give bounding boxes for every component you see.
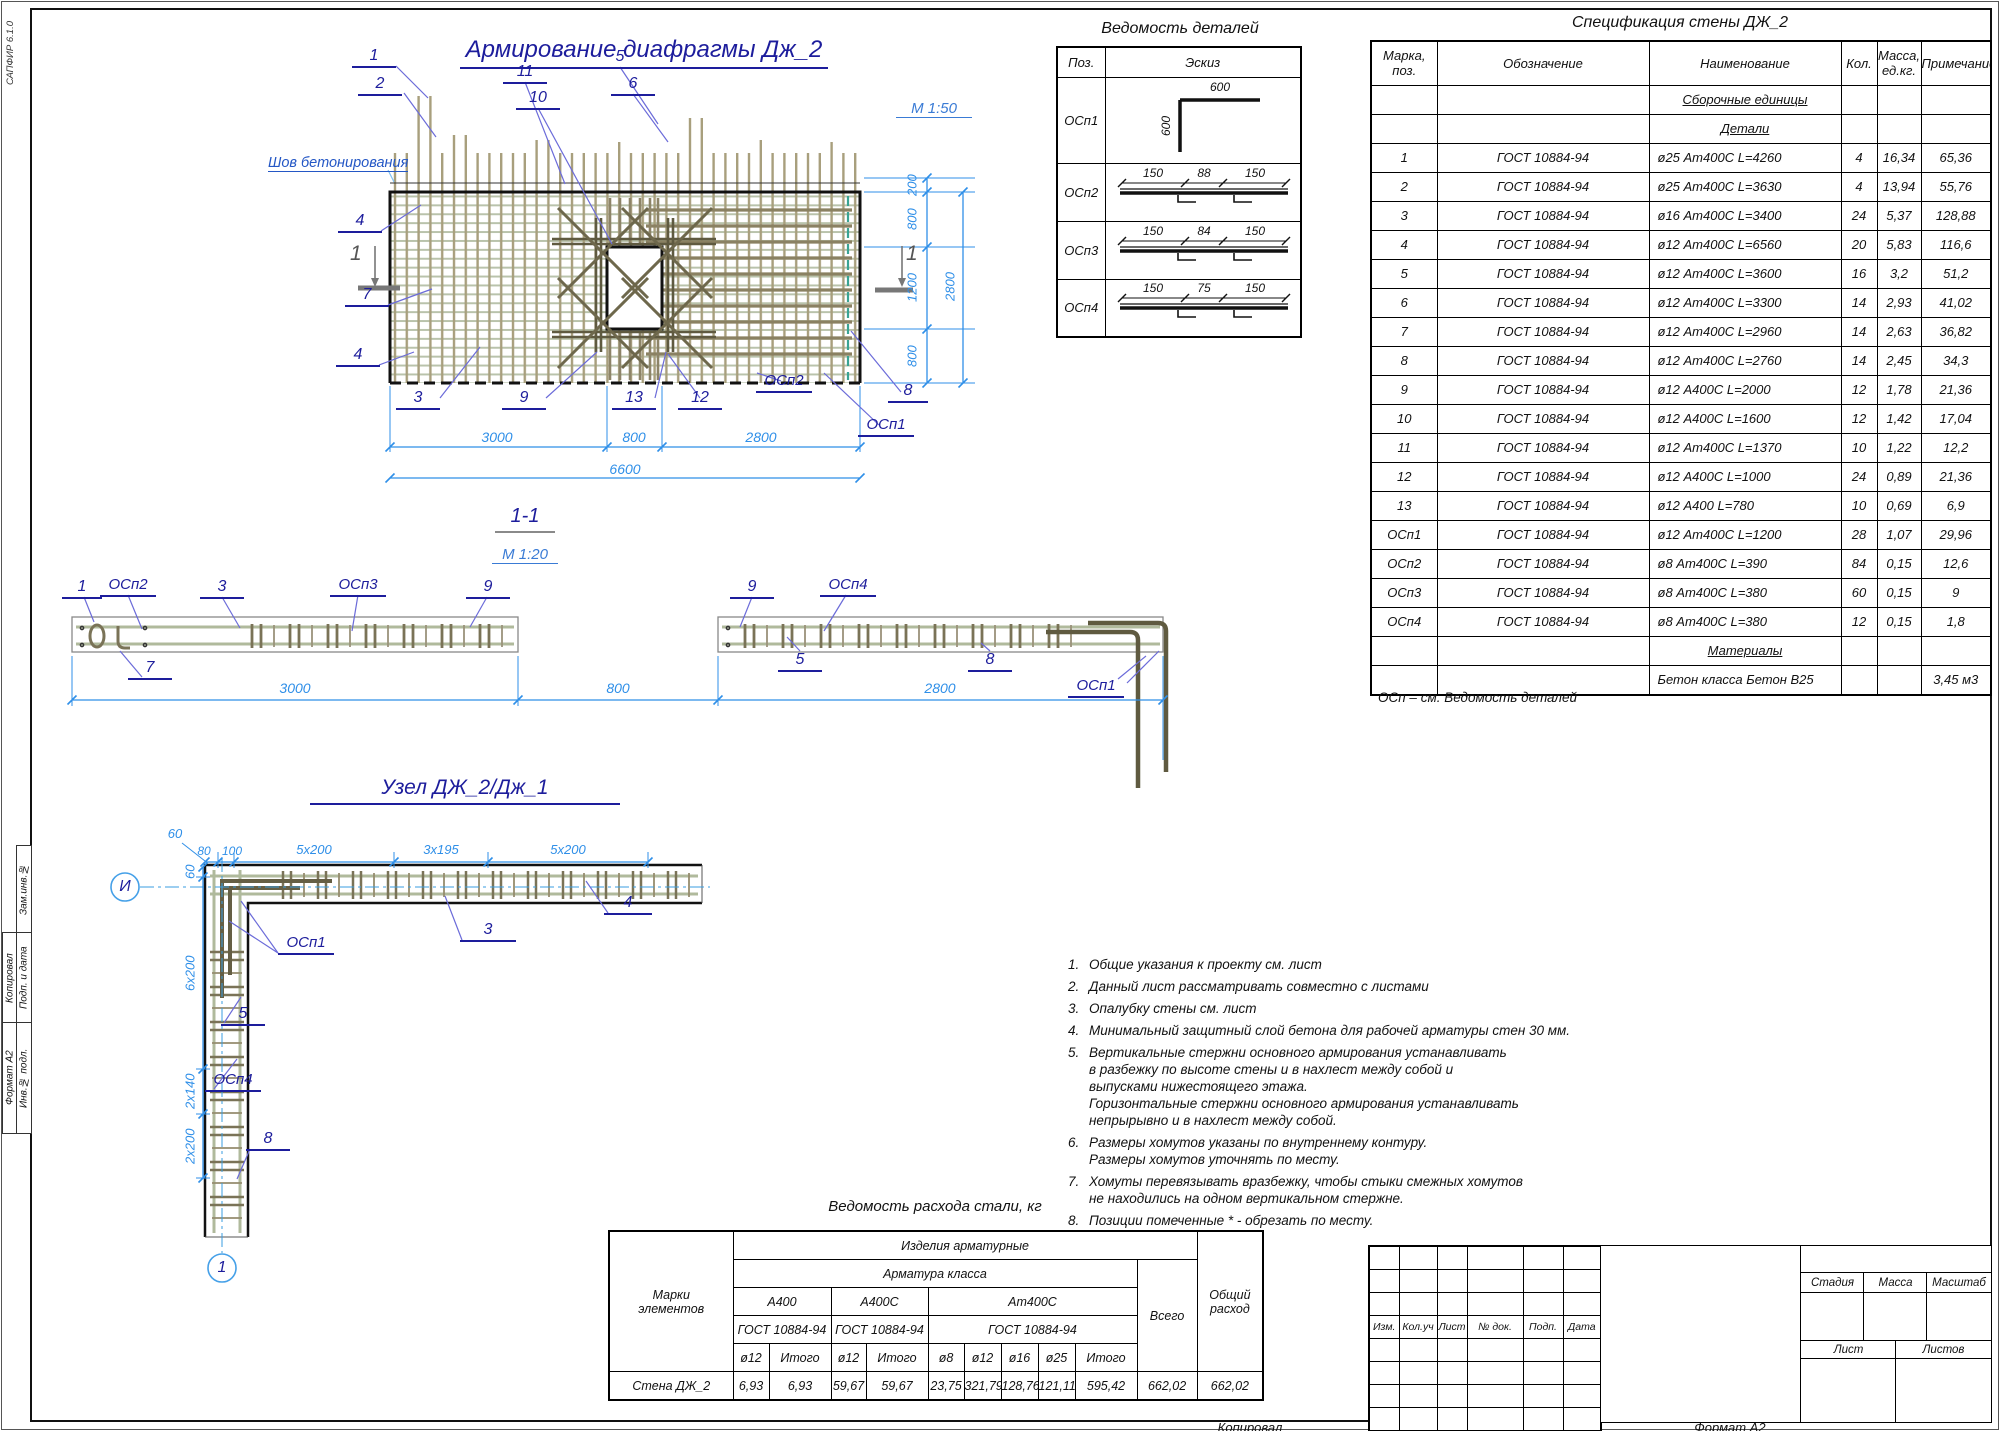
spec-cell: 4	[1841, 172, 1877, 201]
spec-cell: 6,9	[1921, 491, 1991, 520]
node-callout-8: 8	[246, 1129, 290, 1151]
spec-cell: ОСп4	[1371, 607, 1437, 636]
spec-cell: ГОСТ 10884-94	[1437, 520, 1649, 549]
stamp-list-label: Лист	[1800, 1340, 1897, 1360]
stamp-grid-cell	[1399, 1339, 1437, 1362]
steel-gost-at400c: ГОСТ 10884-94	[928, 1316, 1137, 1344]
spec-cell: ГОСТ 10884-94	[1437, 404, 1649, 433]
spec-cell	[1921, 636, 1991, 665]
stamp-grid-cell	[1563, 1362, 1601, 1385]
node-dim-2x200: 2x200	[181, 1124, 199, 1168]
sec-dim-3000: 3000	[250, 680, 340, 696]
spec-cell: 14	[1841, 288, 1877, 317]
stamp-listov-value	[1895, 1358, 1992, 1423]
spec-row: 1ГОСТ 10884-94ø25 Ат400С L=4260416,3465,…	[1371, 143, 1991, 172]
details-row-poz: ОСп1	[1057, 77, 1105, 163]
callout-pos6: 6	[611, 74, 655, 96]
spec-cell: ГОСТ 10884-94	[1437, 607, 1649, 636]
callout-pos4b: 4	[336, 345, 380, 367]
sec-callout-osp1: ОСп1	[1068, 676, 1124, 698]
spec-cell: ГОСТ 10884-94	[1437, 549, 1649, 578]
spec-cell: ø8 Ат400С L=380	[1649, 578, 1841, 607]
stamp-grid-cell	[1523, 1339, 1563, 1362]
spec-cell: ø12 А400 L=780	[1649, 491, 1841, 520]
spec-cell: ø12 Ат400С L=6560	[1649, 230, 1841, 259]
spec-col-oboz: Обозначение	[1437, 41, 1649, 85]
spec-cell: ø12 А400С L=1000	[1649, 462, 1841, 491]
spec-cell	[1921, 85, 1991, 114]
svg-text:150: 150	[1143, 166, 1163, 180]
note-item: 5.Вертикальные стержни основного армиров…	[1068, 1044, 1588, 1129]
stamp-grid-cell	[1563, 1385, 1601, 1408]
spec-cell: 21,36	[1921, 462, 1991, 491]
spec-cell: 55,76	[1921, 172, 1991, 201]
spec-cell: 12	[1371, 462, 1437, 491]
stamp-list-value	[1800, 1358, 1897, 1423]
stamp-stadiya-value	[1800, 1292, 1865, 1342]
node-dim-60t: 60	[160, 826, 190, 841]
spec-cell: 2,63	[1877, 317, 1921, 346]
stamp-grid-cell	[1369, 1270, 1399, 1293]
stamp-masshtab-label: Масштаб	[1926, 1272, 1992, 1294]
spec-row: 2ГОСТ 10884-94ø25 Ат400С L=3630413,9455,…	[1371, 172, 1991, 201]
note-item: 8.Позиции помеченные * - обрезать по мес…	[1068, 1212, 1588, 1229]
stamp-grid-cell: Дата	[1563, 1316, 1601, 1339]
spec-cell: Бетон класса Бетон В25	[1649, 665, 1841, 695]
spec-col-name: Наименование	[1649, 41, 1841, 85]
stamp-grid-cell	[1563, 1293, 1601, 1316]
steel-sub: Итого	[769, 1344, 831, 1372]
spec-col-mass: Масса,ед.кг.	[1877, 41, 1921, 85]
spec-cell: 65,36	[1921, 143, 1991, 172]
spec-cell: Детали	[1649, 114, 1841, 143]
steel-value: 59,67	[866, 1372, 928, 1401]
spec-cell: 13	[1371, 491, 1437, 520]
steel-row-name: Стена ДЖ_2	[609, 1372, 733, 1401]
node-callout-osp4: ОСп4	[205, 1070, 261, 1092]
spec-cell: 12	[1841, 404, 1877, 433]
margin-box-zaminv: Зам.инв.№	[16, 845, 32, 934]
spec-row: ОСп1ГОСТ 10884-94ø12 Ат400С L=1200281,07…	[1371, 520, 1991, 549]
spec-cell: 14	[1841, 346, 1877, 375]
spec-row: 6ГОСТ 10884-94ø12 Ат400С L=3300142,9341,…	[1371, 288, 1991, 317]
callout-pos10: 10	[516, 88, 560, 110]
stamp-grid-cell	[1369, 1246, 1399, 1270]
steel-table: Маркиэлементов Изделия арматурные Общийр…	[608, 1230, 1264, 1401]
sec-callout-9a: 9	[466, 577, 510, 599]
axis-label: И	[111, 878, 139, 896]
steel-value: 59,67	[831, 1372, 866, 1401]
steel-value: 23,75	[928, 1372, 964, 1401]
spec-cell	[1437, 636, 1649, 665]
spec-cell: 0,15	[1877, 578, 1921, 607]
spec-cell: ОСп3	[1371, 578, 1437, 607]
spec-cell: 11	[1371, 433, 1437, 462]
spec-cell: ø16 Ат400С L=3400	[1649, 201, 1841, 230]
stamp-grid-cell	[1523, 1408, 1563, 1431]
spec-cell: 1,78	[1877, 375, 1921, 404]
spec-cell: ø12 Ат400С L=2960	[1649, 317, 1841, 346]
spec-cell	[1877, 636, 1921, 665]
spec-cell: 128,88	[1921, 201, 1991, 230]
callout-pos11: 11	[503, 62, 547, 84]
spec-cell: ГОСТ 10884-94	[1437, 491, 1649, 520]
steel-value: 662,02	[1197, 1372, 1263, 1401]
steel-sub: ø12	[831, 1344, 866, 1372]
svg-text:75: 75	[1197, 281, 1211, 295]
spec-cell: 1,42	[1877, 404, 1921, 433]
spec-cell: 14	[1841, 317, 1877, 346]
node-dim-60l: 60	[181, 850, 199, 894]
stamp-grid-cell	[1437, 1339, 1467, 1362]
steel-sub: ø16	[1001, 1344, 1038, 1372]
stamp-grid-row: Изм.Кол.учЛист№ док.Подп.Дата	[1369, 1316, 1601, 1339]
footer-kopiroval: Копировал	[1205, 1420, 1295, 1431]
spec-cell: Материалы	[1649, 636, 1841, 665]
spec-table-title: Спецификация стены ДЖ_2	[1450, 14, 1910, 32]
spec-row: 8ГОСТ 10884-94ø12 Ат400С L=2760142,4534,…	[1371, 346, 1991, 375]
details-table-title: Ведомость деталей	[1060, 20, 1300, 38]
spec-cell: Сборочные единицы	[1649, 85, 1841, 114]
stamp-grid-cell	[1399, 1408, 1437, 1431]
steel-value: 321,79	[964, 1372, 1001, 1401]
callout-osp2: ОСп2	[756, 371, 812, 393]
steel-value: 595,42	[1075, 1372, 1137, 1401]
callout-pos13: 13	[612, 388, 656, 410]
stamp-grid-row	[1369, 1270, 1601, 1293]
stamp-grid-cell	[1369, 1408, 1399, 1431]
callout-pos9: 9	[502, 388, 546, 410]
steel-sub: ø12	[964, 1344, 1001, 1372]
stamp-grid-row	[1369, 1293, 1601, 1316]
spec-cell: ø12 Ат400С L=2760	[1649, 346, 1841, 375]
spec-cell: 9	[1371, 375, 1437, 404]
spec-cell: ø12 Ат400С L=1370	[1649, 433, 1841, 462]
spec-cell: 6	[1371, 288, 1437, 317]
node-dim-6x200: 6x200	[181, 951, 199, 995]
spec-row: 13ГОСТ 10884-94ø12 А400 L=780100,696,9	[1371, 491, 1991, 520]
stamp-massa-label: Масса	[1863, 1272, 1928, 1294]
stamp-grid-cell	[1437, 1246, 1467, 1270]
stamp-grid-row	[1369, 1339, 1601, 1362]
callout-pos8: 8	[888, 381, 928, 403]
stamp-grid-cell	[1369, 1385, 1399, 1408]
spec-cell: ø8 Ат400С L=380	[1649, 607, 1841, 636]
spec-cell: ГОСТ 10884-94	[1437, 433, 1649, 462]
steel-value: 6,93	[733, 1372, 769, 1401]
svg-text:150: 150	[1143, 281, 1163, 295]
steel-gost-a400: ГОСТ 10884-94	[733, 1316, 831, 1344]
spec-cell: 13,94	[1877, 172, 1921, 201]
steel-class-a400: А400	[733, 1288, 831, 1316]
node-dim-5x200a: 5x200	[284, 842, 344, 857]
sec-dim-2800: 2800	[895, 680, 985, 696]
spec-cell: 12,2	[1921, 433, 1991, 462]
steel-value: 6,93	[769, 1372, 831, 1401]
spec-cell: 5	[1371, 259, 1437, 288]
main-view-scale: М 1:50	[896, 100, 972, 118]
margin-box-podp: Подп. и дата	[16, 932, 32, 1024]
stamp-grid-cell	[1437, 1362, 1467, 1385]
drawing-sheet: Армирование диафрагмы Дж_2 М 1:50 Шов бе…	[0, 0, 2000, 1431]
spec-cell: 60	[1841, 578, 1877, 607]
note-item: 3.Опалубку стены см. лист	[1068, 1000, 1588, 1017]
steel-class-a400c: А400С	[831, 1288, 928, 1316]
spec-col-marka: Марка,поз.	[1371, 41, 1437, 85]
spec-cell: ГОСТ 10884-94	[1437, 317, 1649, 346]
stamp-grid-cell	[1437, 1293, 1467, 1316]
spec-cell: 12	[1841, 375, 1877, 404]
spec-row: 5ГОСТ 10884-94ø12 Ат400С L=3600163,251,2	[1371, 259, 1991, 288]
svg-text:84: 84	[1197, 224, 1211, 238]
stamp-grid-row	[1369, 1246, 1601, 1270]
note-item: 2.Данный лист рассматривать совместно с …	[1068, 978, 1588, 995]
spec-cell: 3,45 м3	[1921, 665, 1991, 695]
steel-h-armatura: Арматура класса	[733, 1260, 1137, 1288]
spec-row: 10ГОСТ 10884-94ø12 А400С L=1600121,4217,…	[1371, 404, 1991, 433]
sec-callout-9b: 9	[730, 577, 774, 599]
stamp-grid-cell	[1523, 1362, 1563, 1385]
sec-dim-800: 800	[588, 680, 648, 696]
spec-row: Материалы	[1371, 636, 1991, 665]
section-title: 1-1	[495, 505, 555, 533]
spec-cell: 2,93	[1877, 288, 1921, 317]
callout-pos7: 7	[345, 285, 389, 307]
spec-cell: 3,2	[1877, 259, 1921, 288]
steel-col-vsego: Всего	[1137, 1260, 1197, 1372]
dim-v2800: 2800	[941, 265, 959, 309]
callout-pos4a: 4	[338, 211, 382, 233]
spec-cell: ГОСТ 10884-94	[1437, 346, 1649, 375]
stamp-grid-cell	[1399, 1385, 1437, 1408]
spec-cell: ø25 Ат400С L=3630	[1649, 172, 1841, 201]
spec-cell: 7	[1371, 317, 1437, 346]
spec-cell: 4	[1371, 230, 1437, 259]
spec-cell: ø25 Ат400С L=4260	[1649, 143, 1841, 172]
spec-cell: 0,89	[1877, 462, 1921, 491]
spec-cell: ø8 Ат400С L=390	[1649, 549, 1841, 578]
callout-pos1: 1	[352, 46, 396, 68]
spec-cell: 29,96	[1921, 520, 1991, 549]
spec-col-qty: Кол.	[1841, 41, 1877, 85]
spec-cell: 10	[1841, 491, 1877, 520]
node-dim-2x140: 2x140	[181, 1069, 199, 1113]
spec-cell: 12,6	[1921, 549, 1991, 578]
spec-cell: 10	[1371, 404, 1437, 433]
details-table: Поз. Эскиз ОСп1 600 600 ОСп2 150	[1056, 46, 1302, 338]
callout-pos2: 2	[358, 74, 402, 96]
spec-row: ОСп4ГОСТ 10884-94ø8 Ат400С L=380120,151,…	[1371, 607, 1991, 636]
node-callout-5: 5	[221, 1004, 265, 1026]
dim-v1200: 1200	[903, 266, 921, 310]
section-scale: М 1:20	[492, 546, 558, 564]
details-sketch-osp3: 150 84 150	[1105, 221, 1301, 279]
spec-cell: 51,2	[1921, 259, 1991, 288]
note-item: 6.Размеры хомутов указаны по внутреннему…	[1068, 1134, 1588, 1168]
spec-cell	[1437, 114, 1649, 143]
spec-footnote: ОСп – см. Ведомость деталей	[1378, 690, 1577, 705]
stamp-grid-cell	[1467, 1339, 1523, 1362]
steel-sub: Итого	[1075, 1344, 1137, 1372]
spec-cell: 1,07	[1877, 520, 1921, 549]
spec-cell: 1	[1371, 143, 1437, 172]
steel-sub: ø12	[733, 1344, 769, 1372]
spec-row: ОСп3ГОСТ 10884-94ø8 Ат400С L=380600,159	[1371, 578, 1991, 607]
spec-row: 9ГОСТ 10884-94ø12 А400С L=2000121,7821,3…	[1371, 375, 1991, 404]
steel-col-obshchiy: Общийрасход	[1197, 1231, 1263, 1372]
spec-cell: ГОСТ 10884-94	[1437, 230, 1649, 259]
callout-pos5: 5	[598, 47, 642, 69]
sec-callout-5: 5	[778, 650, 822, 672]
details-row-poz: ОСп4	[1057, 279, 1105, 337]
stamp-designation-cell	[1800, 1245, 1992, 1274]
details-col-eskiz: Эскиз	[1105, 47, 1301, 77]
steel-value: 128,76	[1001, 1372, 1038, 1401]
stamp-grid-row	[1369, 1362, 1601, 1385]
stamp-grid-cell	[1399, 1246, 1437, 1270]
details-row-poz: ОСп3	[1057, 221, 1105, 279]
sec-callout-8: 8	[968, 650, 1012, 672]
stamp-grid-cell	[1523, 1270, 1563, 1293]
steel-sub: ø8	[928, 1344, 964, 1372]
spec-cell: 36,82	[1921, 317, 1991, 346]
stamp-grid-cell: № док.	[1467, 1316, 1523, 1339]
spec-cell: 2	[1371, 172, 1437, 201]
spec-cell: 1,8	[1921, 607, 1991, 636]
details-sketch-osp2: 150 88 150	[1105, 163, 1301, 221]
spec-cell: ø12 А400С L=2000	[1649, 375, 1841, 404]
spec-cell	[1371, 636, 1437, 665]
spec-cell: 1,22	[1877, 433, 1921, 462]
sec-callout-7: 7	[128, 658, 172, 680]
note-item: 1.Общие указания к проекту см. лист	[1068, 956, 1588, 973]
spec-cell: ø12 Ат400С L=1200	[1649, 520, 1841, 549]
svg-text:150: 150	[1245, 224, 1265, 238]
stamp-massa-value	[1863, 1292, 1928, 1342]
node-bubble-1: 1	[208, 1259, 236, 1277]
spec-cell: 17,04	[1921, 404, 1991, 433]
steel-value: 121,11	[1038, 1372, 1075, 1401]
stamp-grid-cell	[1437, 1408, 1467, 1431]
spec-cell: 0,15	[1877, 549, 1921, 578]
spec-cell: ø12 А400С L=1600	[1649, 404, 1841, 433]
margin-box-invpodl: Инв.№ подл.	[16, 1022, 32, 1134]
steel-col-marki: Маркиэлементов	[609, 1231, 733, 1372]
steel-h-izdeliya: Изделия арматурные	[733, 1231, 1197, 1260]
stamp-grid-cell	[1369, 1339, 1399, 1362]
svg-text:150: 150	[1245, 166, 1265, 180]
details-sketch-osp4: 150 75 150	[1105, 279, 1301, 337]
spec-cell: 21,36	[1921, 375, 1991, 404]
spec-cell: ø12 Ат400С L=3600	[1649, 259, 1841, 288]
callout-pos12: 12	[678, 388, 722, 410]
sec-callout-3: 3	[200, 577, 244, 599]
stamp-grid-cell	[1399, 1362, 1437, 1385]
node-title: Узел ДЖ_2/Дж_1	[310, 776, 620, 805]
stamp-grid-cell	[1399, 1293, 1437, 1316]
stamp-grid-cell	[1369, 1293, 1399, 1316]
spec-cell: 41,02	[1921, 288, 1991, 317]
dim-v800b: 800	[903, 334, 921, 378]
node-callout-osp1: ОСп1	[278, 933, 334, 955]
spec-cell: 116,6	[1921, 230, 1991, 259]
spec-cell	[1877, 665, 1921, 695]
svg-text:150: 150	[1143, 224, 1163, 238]
stamp-grid-cell	[1369, 1362, 1399, 1385]
spec-cell: ГОСТ 10884-94	[1437, 462, 1649, 491]
stamp-masshtab-value	[1926, 1292, 1992, 1342]
spec-row: 12ГОСТ 10884-94ø12 А400С L=1000240,8921,…	[1371, 462, 1991, 491]
spec-cell: ОСп2	[1371, 549, 1437, 578]
dim-6600: 6600	[580, 461, 670, 477]
svg-text:88: 88	[1197, 166, 1211, 180]
stamp-grid-cell	[1467, 1246, 1523, 1270]
spec-cell	[1877, 85, 1921, 114]
cad-version-label: САПФИР 6.1.0	[4, 8, 17, 98]
spec-cell: 84	[1841, 549, 1877, 578]
sec-callout-osp2: ОСп2	[100, 575, 156, 597]
svg-text:150: 150	[1245, 281, 1265, 295]
callout-osp1: ОСп1	[858, 415, 914, 437]
stamp-grid-cell: Лист	[1437, 1316, 1467, 1339]
spec-cell: ГОСТ 10884-94	[1437, 172, 1649, 201]
spec-cell: 28	[1841, 520, 1877, 549]
spec-cell	[1437, 85, 1649, 114]
spec-cell: ОСп1	[1371, 520, 1437, 549]
stamp-grid-cell: Кол.уч	[1399, 1316, 1437, 1339]
dim-v800a: 800	[903, 197, 921, 241]
stamp-grid-cell	[1467, 1362, 1523, 1385]
stamp-grid-cell	[1467, 1408, 1523, 1431]
spec-cell	[1841, 114, 1877, 143]
dim-3000: 3000	[452, 429, 542, 445]
stamp-grid-cell	[1563, 1270, 1601, 1293]
stamp-grid-cell	[1523, 1246, 1563, 1270]
spec-cell: 16	[1841, 259, 1877, 288]
spec-cell: 34,3	[1921, 346, 1991, 375]
section-mark-right: 1	[906, 242, 918, 266]
stamp-grid-cell	[1563, 1339, 1601, 1362]
seam-label: Шов бетонирования	[268, 155, 408, 172]
sec-callout-osp3: ОСп3	[330, 575, 386, 597]
note-item: 4.Минимальный защитный слой бетона для р…	[1068, 1022, 1588, 1039]
spec-table: Марка,поз. Обозначение Наименование Кол.…	[1370, 40, 1992, 696]
spec-row: 3ГОСТ 10884-94ø16 Ат400С L=3400245,37128…	[1371, 201, 1991, 230]
spec-cell: 5,83	[1877, 230, 1921, 259]
details-col-poz: Поз.	[1057, 47, 1105, 77]
spec-cell: ГОСТ 10884-94	[1437, 201, 1649, 230]
spec-cell	[1841, 636, 1877, 665]
stamp-doc-name-cell	[1600, 1245, 1802, 1423]
stamp-stadiya-label: Стадия	[1800, 1272, 1865, 1294]
stamp-revision-grid: Изм.Кол.учЛист№ док.Подп.Дата	[1368, 1245, 1602, 1431]
note-item: 7.Хомуты перевязывать вразбежку, чтобы с…	[1068, 1173, 1588, 1207]
section-mark-left: 1	[350, 242, 362, 266]
stamp-grid-cell	[1467, 1293, 1523, 1316]
stamp-grid-cell	[1563, 1246, 1601, 1270]
spec-cell: 3	[1371, 201, 1437, 230]
stamp-grid-cell: Изм.	[1369, 1316, 1399, 1339]
svg-text:600: 600	[1210, 80, 1230, 94]
general-notes: 1.Общие указания к проекту см. лист2.Дан…	[1068, 956, 1588, 1234]
spec-col-note: Примечание	[1921, 41, 1991, 85]
spec-cell	[1841, 665, 1877, 695]
stamp-grid-cell	[1523, 1293, 1563, 1316]
stamp-listov-label: Листов	[1895, 1340, 1992, 1360]
spec-row: 4ГОСТ 10884-94ø12 Ат400С L=6560205,83116…	[1371, 230, 1991, 259]
spec-cell: ГОСТ 10884-94	[1437, 578, 1649, 607]
stamp-grid-cell: Подп.	[1523, 1316, 1563, 1339]
